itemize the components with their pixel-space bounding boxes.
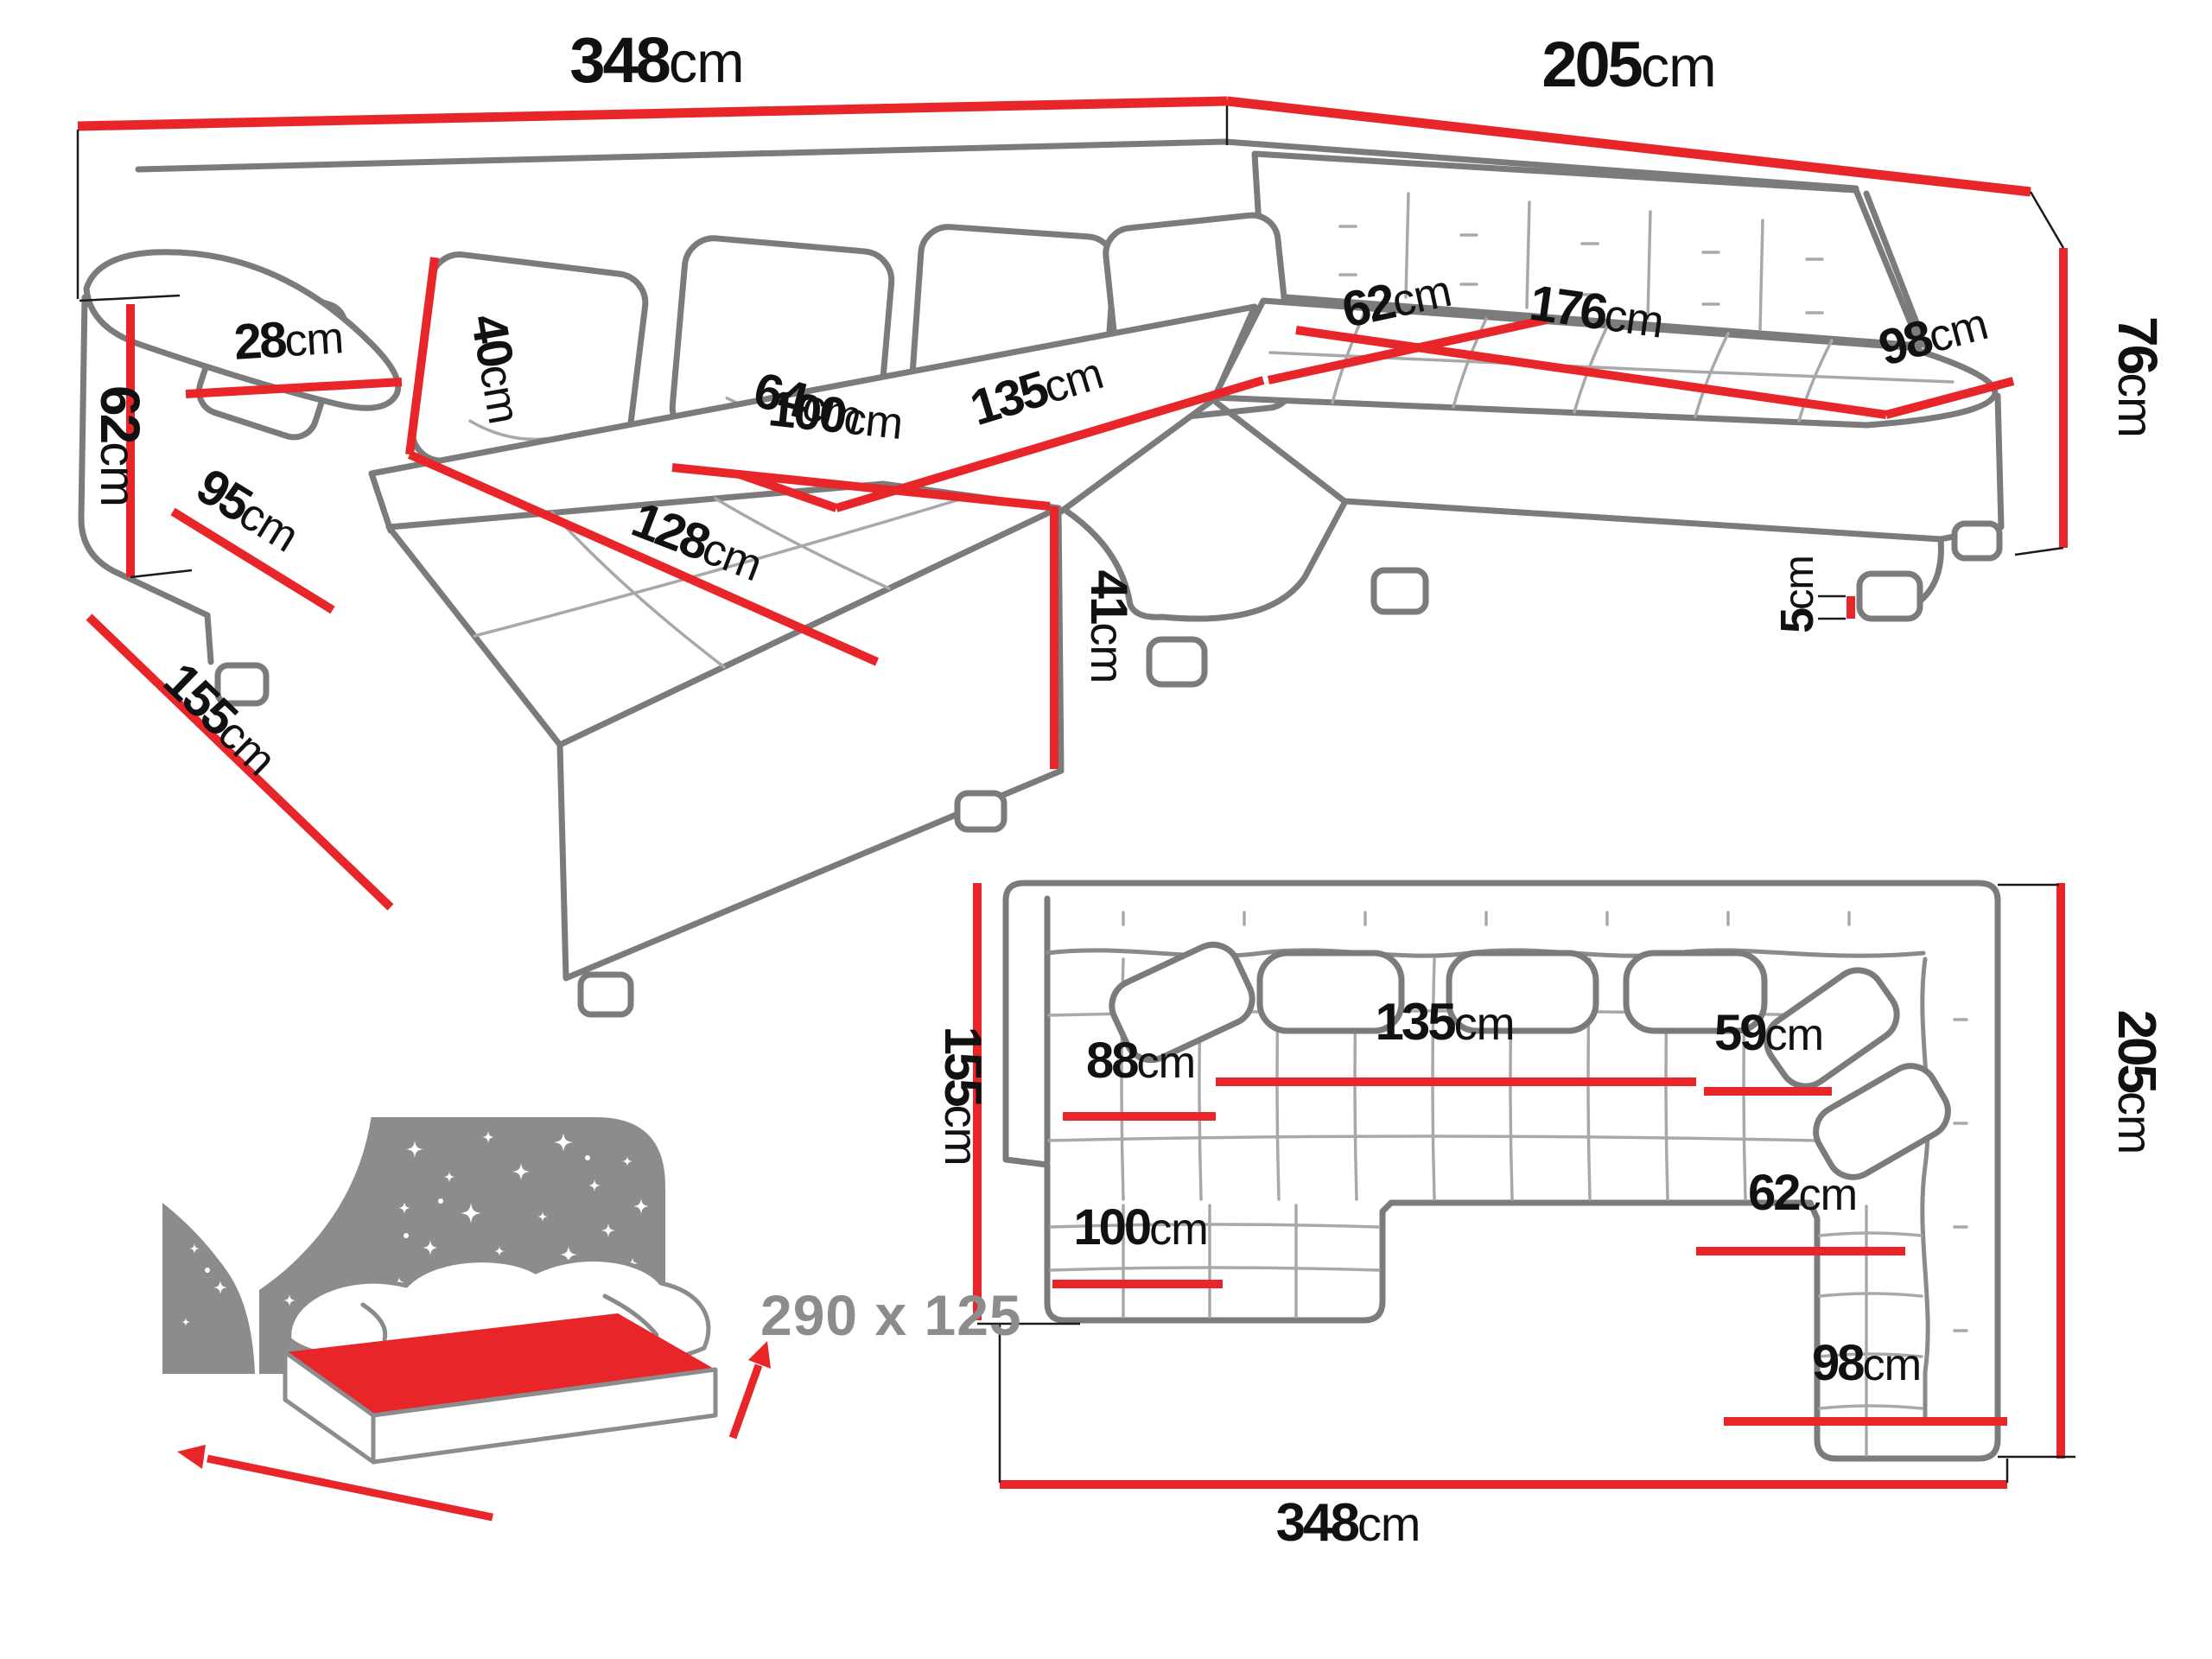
sofa-leg [1374,570,1426,612]
plan-label-59cm: 59cm [1714,1005,1823,1061]
plan-label-348cm: 348cm [1276,1493,1421,1553]
plan-label-88cm: 88cm [1086,1033,1195,1089]
sofa-dimensions-diagram: 348cm 205cm 76cm 62cm 95cm 155cm 28cm 40… [0,0,2212,1659]
sofa-leg [1955,524,1999,558]
perspective-view: 348cm 205cm 76cm 62cm 95cm 155cm 28cm 40… [78,24,2169,1014]
plan-label-155cm: 155cm [934,1026,992,1165]
label-28cm: 28cm [232,308,345,371]
label-348cm: 348cm [569,24,743,96]
plan-label-62cm: 62cm [1748,1165,1857,1221]
label-76cm: 76cm [2107,316,2169,437]
plan-label-100cm: 100cm [1073,1199,1207,1255]
label-62cm-height: 62cm [89,385,151,506]
sleeping-size-label: 290 x 125 [760,1283,1022,1347]
label-205cm: 205cm [1541,29,1715,100]
plan-label-135cm: 135cm [1375,993,1514,1051]
armrest-body-front [207,615,211,662]
sofa-leg [1149,639,1205,684]
sleeping-function-icon: 290 x 125 [151,1115,1022,1517]
label-41cm: 41cm [1080,570,1138,683]
plan-view: 155cm 88cm 135cm 59cm 62cm 100cm 98cm 20… [934,883,2166,1553]
label-5cm: 5cm [1771,556,1823,633]
sofa-leg [957,793,1004,829]
diagram-canvas: 348cm 205cm 76cm 62cm 95cm 155cm 28cm 40… [0,0,2212,1659]
plan-label-205cm: 205cm [2107,1010,2166,1154]
right-base [1217,396,2001,619]
sofa-leg [581,975,631,1014]
dimension-line-348 [78,101,1227,126]
sofa-leg [1859,574,1920,619]
plan-label-98cm: 98cm [1812,1335,1921,1391]
label-95cm: 95cm [187,458,308,563]
